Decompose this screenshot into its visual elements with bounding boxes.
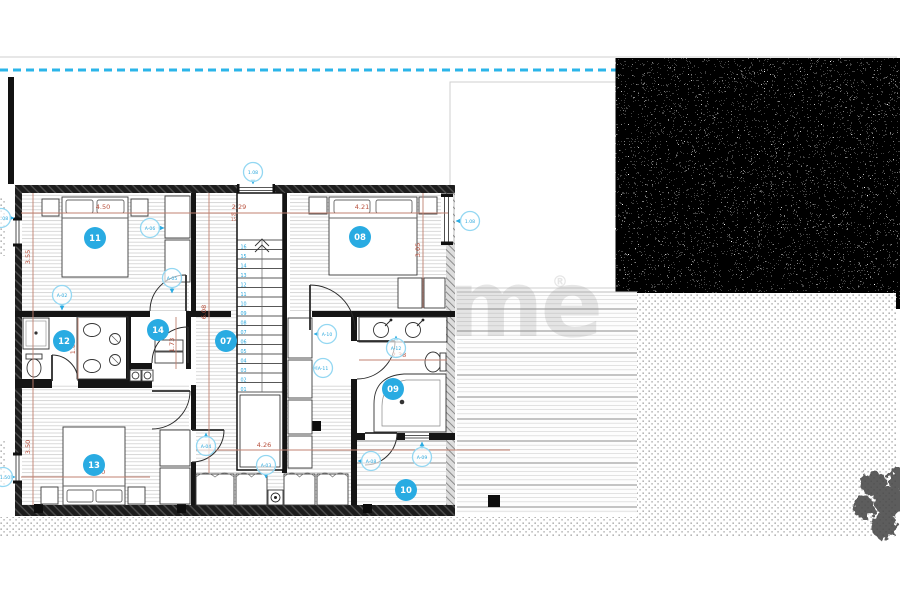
tag-wardrobe-11: A-06 <box>145 226 156 232</box>
toilet-tank <box>440 353 446 371</box>
sink <box>84 324 101 337</box>
gravel-area-right <box>637 293 896 528</box>
room-badge-12: 12 <box>53 330 75 352</box>
wall-11-hall <box>191 193 196 317</box>
svg-text:14: 14 <box>152 326 164 336</box>
tag-terrace-door: A-08 <box>366 459 377 465</box>
wall-bath09-top <box>312 311 455 317</box>
dim-room11-depth: 3.55 <box>24 250 32 264</box>
pillow <box>376 200 412 213</box>
wall-bath09-bottom-a <box>351 433 365 440</box>
tag-cabinet-b: A-11 <box>318 366 329 372</box>
wall-bath09-left-b <box>351 379 357 505</box>
room-badge-14: 14 <box>147 319 169 341</box>
svg-text:08: 08 <box>354 233 366 243</box>
left-boundary-wall <box>8 77 14 184</box>
svg-text:02: 02 <box>241 378 247 384</box>
staircase: 01 02 03 04 05 06 07 08 09 10 11 12 13 1… <box>237 193 283 470</box>
room-badge-09: 09 <box>382 378 404 400</box>
svg-text:04: 04 <box>241 359 247 365</box>
dim-room08-width: 4.21 <box>355 203 369 211</box>
sink <box>84 360 101 373</box>
svg-text:09: 09 <box>241 311 247 317</box>
column <box>363 504 372 513</box>
svg-text:13: 13 <box>88 461 100 471</box>
svg-text:06: 06 <box>241 340 247 346</box>
dim-room08-depth: 3.05 <box>414 243 422 257</box>
tub-drain <box>400 400 405 405</box>
svg-text:16: 16 <box>241 245 247 251</box>
tag-window-left-lower: 1.50 <box>0 475 10 481</box>
dim-lower-hall: 4.26 <box>257 441 271 449</box>
column <box>34 504 43 513</box>
window-left-upper <box>13 218 22 247</box>
svg-text:07: 07 <box>220 337 232 347</box>
svg-text:12: 12 <box>58 337 70 347</box>
svg-text:14: 14 <box>241 264 247 270</box>
dim-room13-depth: 3.50 <box>24 440 32 454</box>
svg-text:15: 15 <box>241 254 247 260</box>
wall-bath09-bottom-b <box>397 433 405 440</box>
pillow <box>67 490 93 502</box>
dim-room14: 1.73 <box>168 338 176 352</box>
site-boundary-band <box>633 61 897 69</box>
svg-text:10: 10 <box>400 486 412 496</box>
column <box>311 421 321 431</box>
wall-bath12-top-a <box>15 311 150 317</box>
stair-landing <box>240 395 280 467</box>
dim-hall-length: 6.08 <box>200 305 208 319</box>
wall-room14-bottom <box>131 363 152 369</box>
window-left-lower <box>13 453 22 484</box>
pillow <box>96 490 122 502</box>
svg-text:11: 11 <box>89 234 101 244</box>
wall-bottom <box>15 505 455 516</box>
wall-bath09-bottom-c <box>429 433 455 440</box>
wall-bath12-bottom-a <box>15 379 52 388</box>
svg-text:01: 01 <box>241 387 247 393</box>
nightstand <box>419 197 437 214</box>
svg-text:05: 05 <box>241 349 247 355</box>
toilet <box>27 359 41 377</box>
room-badge-08: 08 <box>349 226 371 248</box>
tag-door-13: A-04 <box>201 444 212 450</box>
nightstand <box>309 197 327 214</box>
floorplan-svg: zome ® <box>0 0 900 597</box>
tag-door-hall: A-05 <box>167 276 178 282</box>
svg-text:11: 11 <box>241 292 247 298</box>
svg-text:09: 09 <box>387 385 399 395</box>
tag-window-right: 1.08 <box>465 219 475 225</box>
dim-hall-width: 2.29 <box>232 203 246 211</box>
nightstand <box>41 487 58 504</box>
tag-window-left: 1.08 <box>0 216 8 222</box>
column <box>177 504 186 513</box>
tag-cabinet-a: A-10 <box>322 332 333 338</box>
window-bath09-bottom <box>405 433 429 440</box>
cabinet-column-stair <box>288 318 312 468</box>
svg-text:12: 12 <box>241 283 247 289</box>
shower-drain <box>34 331 37 334</box>
dresser-room08 <box>398 278 445 308</box>
dim-sill-height2: 15 <box>231 217 237 222</box>
watermark-reg-icon: ® <box>552 272 566 291</box>
wall-13-hall-a <box>191 385 196 430</box>
svg-text:03: 03 <box>241 368 247 374</box>
tag-vanity-09: A-12 <box>391 346 402 352</box>
room-badge-13: 13 <box>83 454 105 476</box>
tag-door-11: A-02 <box>57 293 68 299</box>
floorplan-sheet: zome ® <box>0 0 900 597</box>
svg-text:10: 10 <box>241 302 247 308</box>
tag-window-top: 1.08 <box>248 170 258 176</box>
tag-window-terrace: A-09 <box>417 455 428 461</box>
wall-13-hall-b <box>191 462 196 505</box>
room-badge-10: 10 <box>395 479 417 501</box>
deck-column <box>488 495 500 507</box>
wall-top <box>15 185 455 193</box>
wall-bath09-left-a <box>351 311 357 341</box>
gravel-band-bottom <box>0 517 896 537</box>
room-badge-11: 11 <box>84 227 106 249</box>
pillow <box>66 200 93 213</box>
tag-closet-row: A-03 <box>261 463 272 469</box>
svg-text:13: 13 <box>241 273 247 279</box>
svg-text:08: 08 <box>241 321 247 327</box>
svg-text:07: 07 <box>241 330 247 336</box>
toilet-tank <box>26 354 42 359</box>
toilet <box>425 352 441 372</box>
window-right-08 <box>441 194 453 246</box>
dim-room11-width: 4.50 <box>96 203 110 211</box>
wall-bath12-top-b <box>186 311 231 317</box>
vegetation-texture-block <box>641 79 893 288</box>
nightstand <box>128 487 145 504</box>
room-badge-07: 07 <box>215 330 237 352</box>
